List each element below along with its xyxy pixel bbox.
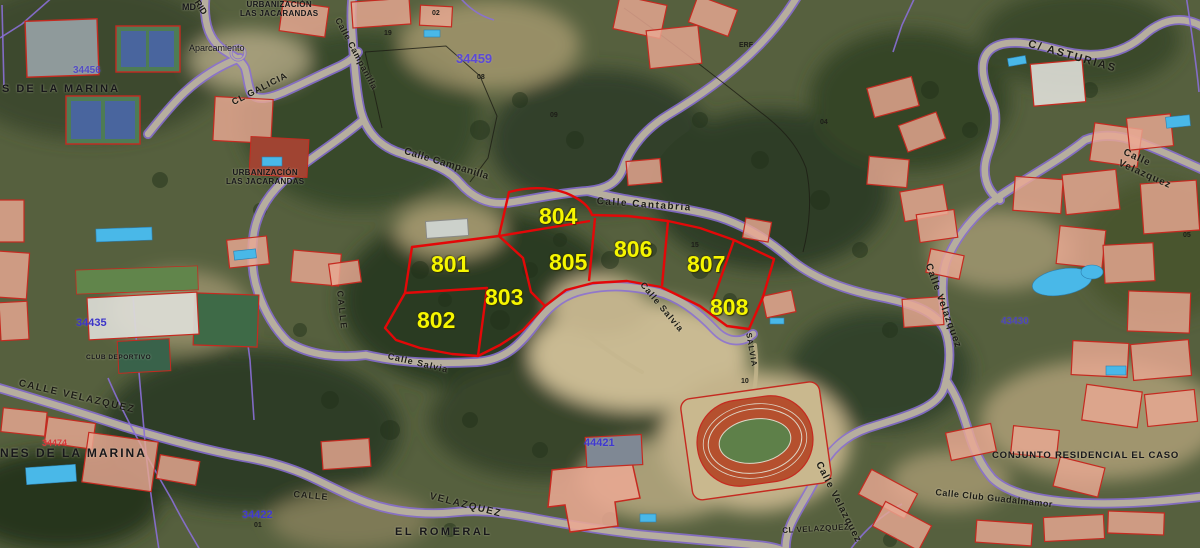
athletics-track	[680, 381, 833, 501]
aerial-imagery	[0, 0, 1200, 548]
map-canvas[interactable]: 801 802 803 804 805 806 807 808 34459 34…	[0, 0, 1200, 548]
